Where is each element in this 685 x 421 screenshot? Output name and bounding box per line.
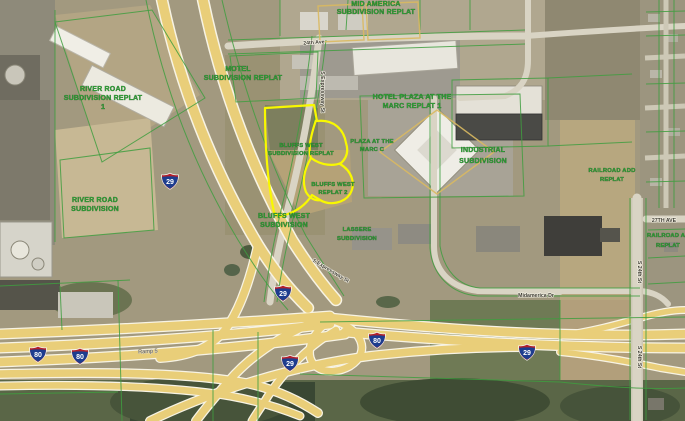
svg-text:SUBDIVISION REPLAT: SUBDIVISION REPLAT [204,75,283,82]
svg-text:PLAZA AT THE: PLAZA AT THE [350,139,393,145]
shield-number: 29 [286,361,294,368]
midamerica-label: Midamerica Dr [518,293,554,299]
svg-text:SUBDIVISION: SUBDIVISION [459,158,507,165]
shield-number: 29 [523,350,531,357]
svg-text:SUBDIVISION REPLAT: SUBDIVISION REPLAT [337,9,416,16]
svg-text:MOTEL: MOTEL [225,66,251,73]
shield-number: 80 [373,338,381,345]
svg-text:RAILROAD ADDITION: RAILROAD ADDITION [647,233,685,239]
shield-number: 29 [166,179,174,186]
svg-text:SUBDIVISION REPLAT: SUBDIVISION REPLAT [268,151,334,157]
svg-text:MID AMERICA: MID AMERICA [351,1,400,8]
ave27-label: 27TH AVE [652,218,677,224]
svg-text:BLUFFS WEST: BLUFFS WEST [258,213,310,220]
ramp-5-label: Ramp 5 [138,348,158,355]
svg-text:HOTEL PLAZA AT THE: HOTEL PLAZA AT THE [373,94,452,101]
shield-number: 80 [34,352,42,359]
svg-text:INDUSTRIAL: INDUSTRIAL [461,147,506,154]
svg-text:SUBDIVISION: SUBDIVISION [71,206,119,213]
svg-text:SUBDIVISION: SUBDIVISION [337,236,377,242]
svg-text:SUBDIVISION: SUBDIVISION [260,222,308,229]
svg-text:LASSERE: LASSERE [343,227,372,233]
aerial-parcel-map[interactable]: 80 80 29 29 29 [0,0,685,421]
svg-text:MARC C: MARC C [360,147,385,153]
st24-label-lower: S 24th St [636,346,642,368]
map-svg: 80 80 29 29 29 [0,0,685,421]
svg-text:RIVER ROAD: RIVER ROAD [72,197,118,204]
svg-text:REPLAT: REPLAT [600,177,624,183]
svg-text:RAILROAD ADD: RAILROAD ADD [589,168,636,174]
expressway-label-vertical: S Expressway St [319,71,325,113]
svg-text:REPLAT: REPLAT [656,243,680,249]
svg-text:1: 1 [101,104,105,111]
shield-number: 29 [279,291,287,298]
shield-number: 80 [76,354,84,361]
svg-text:BLUFFS WEST: BLUFFS WEST [311,182,355,188]
svg-text:BLUFFS WEST: BLUFFS WEST [279,143,323,149]
svg-text:SUBDIVISION REPLAT: SUBDIVISION REPLAT [64,95,143,102]
st24-label-upper: S 24th St [636,261,642,283]
svg-text:MARC REPLAT 1: MARC REPLAT 1 [383,103,442,110]
svg-text:REPLAT 2: REPLAT 2 [318,190,347,196]
svg-text:RIVER ROAD: RIVER ROAD [80,86,126,93]
